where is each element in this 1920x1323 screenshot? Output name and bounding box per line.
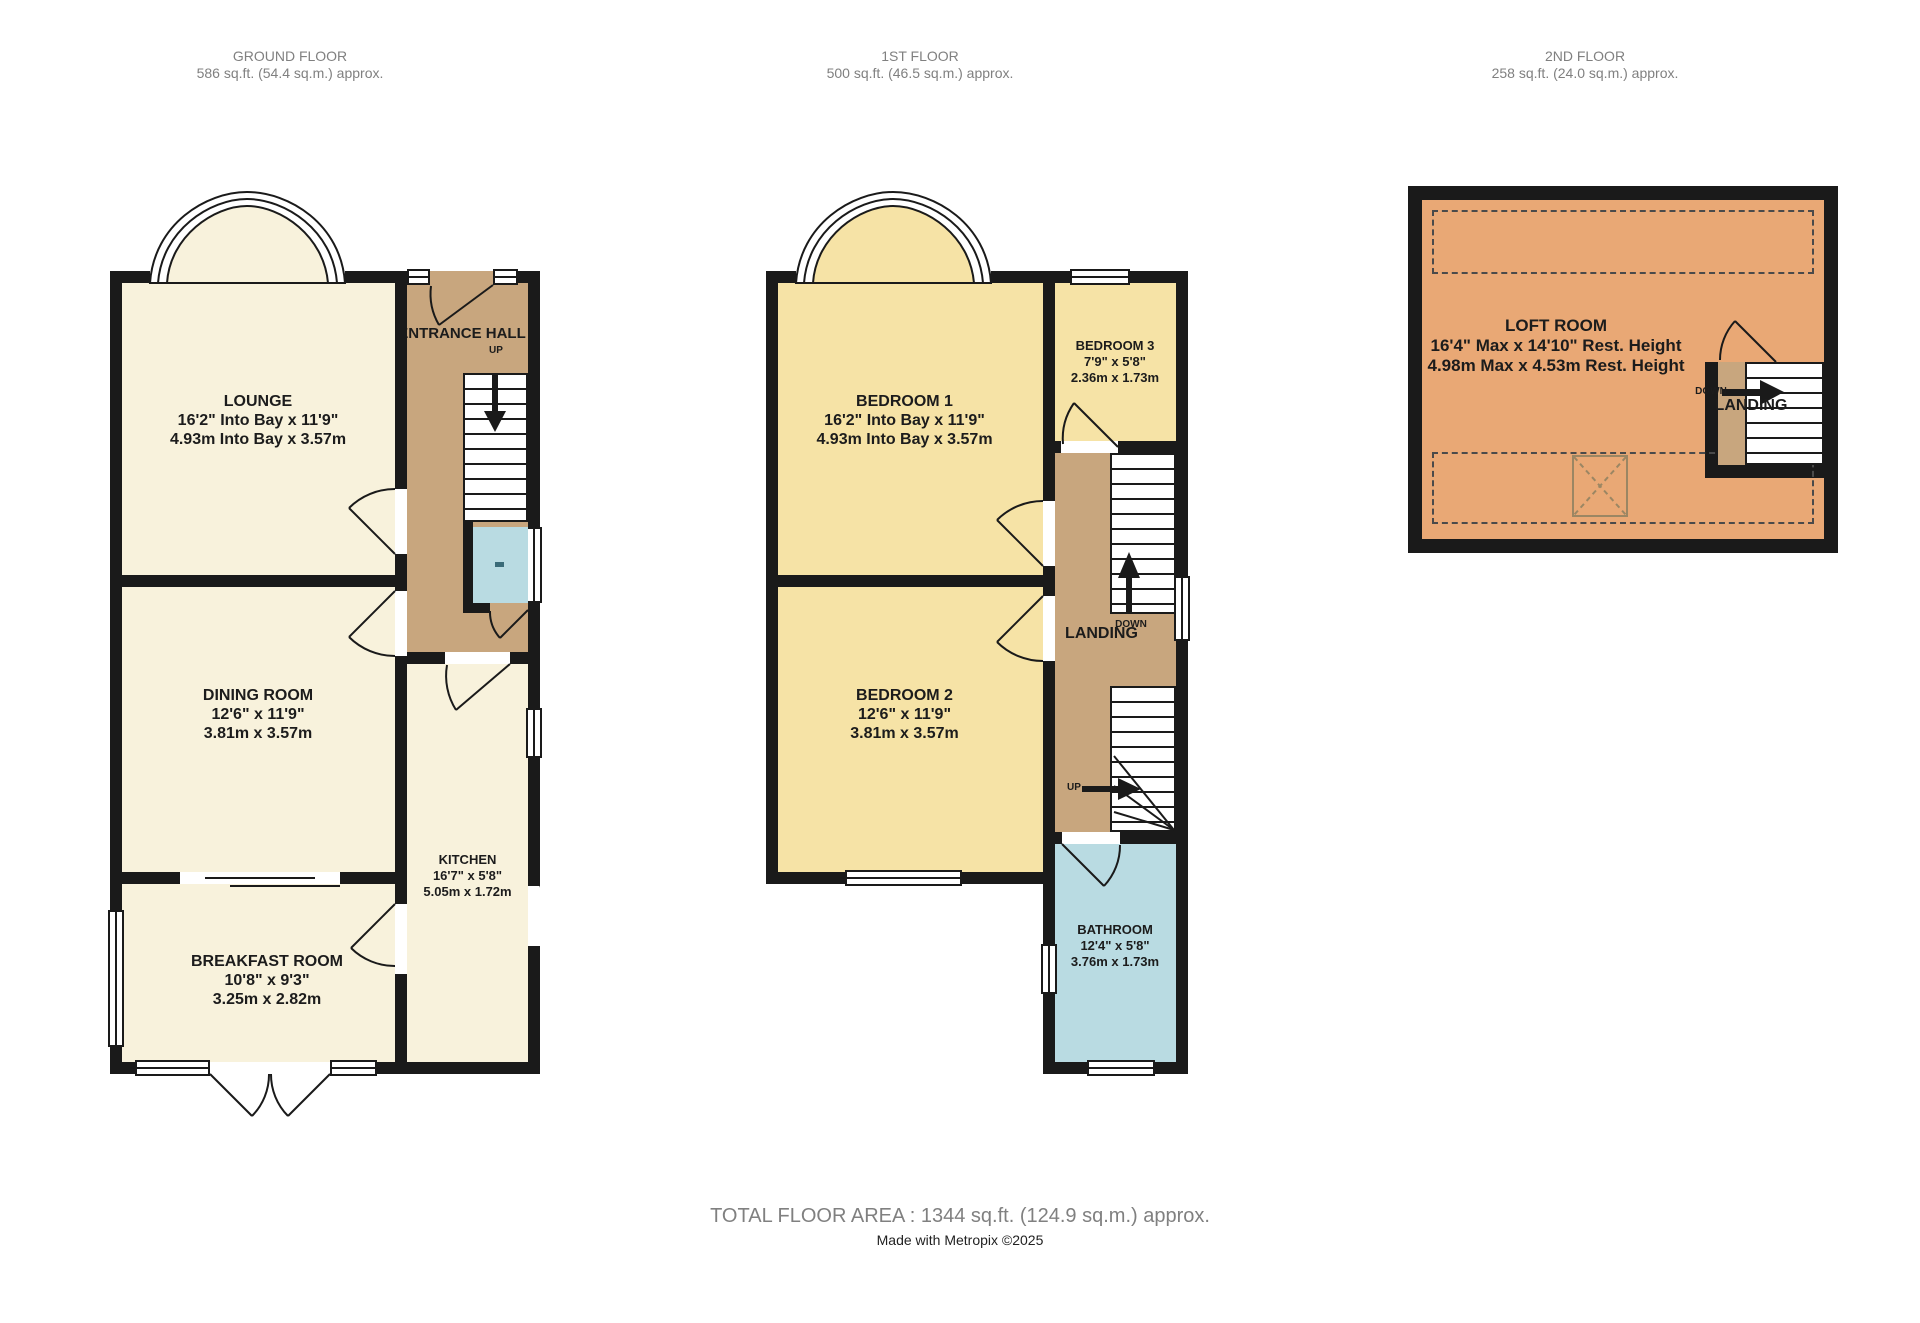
door-arc [252,1074,269,1116]
door-leaf [349,508,395,554]
bedroom2-label: BEDROOM 2 12'6" x 11'9" 3.81m x 3.57m [766,686,1043,743]
ground-floor-header: GROUND FLOOR 586 sq.ft. (54.4 sq.m.) app… [90,48,490,82]
door-arc [997,501,1043,520]
bedroom1-label: BEDROOM 1 16'2" Into Bay x 11'9" 4.93m I… [766,392,1043,449]
up-label: UP [476,345,516,357]
bedroom1-name: BEDROOM 1 [766,392,1043,411]
door-arc [349,637,395,656]
stairs-up-arrowhead [1118,552,1140,578]
door-leaf [1062,844,1104,886]
bedroom3-name: BEDROOM 3 [1051,338,1179,354]
door-leaf [349,591,395,637]
breakfast-dims-imperial: 10'8" x 9'3" [117,971,417,990]
bedroom1-dims-imperial: 16'2" Into Bay x 11'9" [766,411,1043,430]
lounge-label: LOUNGE 16'2" Into Bay x 11'9" 4.93m Into… [118,392,398,449]
door-arc [1720,321,1735,360]
kitchen-name: KITCHEN [405,852,530,868]
winder-step [1114,812,1174,830]
dining-dims-imperial: 12'6" x 11'9" [118,705,398,724]
floorplan-canvas: GROUND FLOOR 586 sq.ft. (54.4 sq.m.) app… [0,0,1920,1323]
second-floor-title: 2ND FLOOR [1385,48,1785,65]
first-floor-title: 1ST FLOOR [720,48,1120,65]
breakfast-dims-metric: 3.25m x 2.82m [117,990,417,1009]
first-floor-header: 1ST FLOOR 500 sq.ft. (46.5 sq.m.) approx… [720,48,1120,82]
ground-floor-title: GROUND FLOOR [90,48,490,65]
door-leaf [1074,403,1118,447]
landing-label: LANDING [1701,396,1801,415]
door-arc [1104,845,1120,886]
door-leaf [997,520,1043,566]
ground-floor-plan: ENTRANCE HALL UP LOUNGE 16'2" Into Bay x… [110,186,540,1146]
down-label: DOWN [1111,619,1151,631]
metropix-credit: Made with Metropix ©2025 [460,1232,1460,1248]
stairs-down-arrowhead [484,411,506,432]
bedroom1-dims-metric: 4.93m Into Bay x 3.57m [766,430,1043,449]
bathroom-dims-imperial: 12'4" x 5'8" [1051,938,1179,954]
door-arc [431,286,439,325]
lounge-dims-metric: 4.93m Into Bay x 3.57m [118,430,398,449]
door-arc [446,665,456,710]
door-arc [490,611,500,638]
first-floor-plan: BEDROOM 1 16'2" Into Bay x 11'9" 4.93m I… [766,186,1188,1086]
second-floor-area: 258 sq.ft. (24.0 sq.m.) approx. [1385,65,1785,82]
bedroom3-label: BEDROOM 3 7'9" x 5'8" 2.36m x 1.73m [1051,338,1179,386]
door-leaf [351,904,395,948]
stairs-up-arrow [1082,786,1120,792]
door-arc [349,489,395,508]
door-leaf [439,285,493,325]
bathroom-dims-metric: 3.76m x 1.73m [1051,954,1179,970]
door-arc [271,1074,288,1116]
loft-name: LOFT ROOM [1408,316,1704,336]
first-floor-area: 500 sq.ft. (46.5 sq.m.) approx. [720,65,1120,82]
door-arc [997,642,1043,661]
ground-floor-area: 586 sq.ft. (54.4 sq.m.) approx. [90,65,490,82]
bedroom2-dims-metric: 3.81m x 3.57m [766,724,1043,743]
lounge-name: LOUNGE [118,392,398,411]
bathroom-label: BATHROOM 12'4" x 5'8" 3.76m x 1.73m [1051,922,1179,970]
bedroom3-dims-metric: 2.36m x 1.73m [1051,370,1179,386]
dining-dims-metric: 3.81m x 3.57m [118,724,398,743]
loft-dims-imperial: 16'4" Max x 14'10" Rest. Height [1408,336,1704,356]
lounge-dims-imperial: 16'2" Into Bay x 11'9" [118,411,398,430]
bedroom3-dims-imperial: 7'9" x 5'8" [1051,354,1179,370]
bedroom2-name: BEDROOM 2 [766,686,1043,705]
second-floor-header: 2ND FLOOR 258 sq.ft. (24.0 sq.m.) approx… [1385,48,1785,82]
bedroom2-dims-imperial: 12'6" x 11'9" [766,705,1043,724]
bathroom-name: BATHROOM [1051,922,1179,938]
total-floor-area: TOTAL FLOOR AREA : 1344 sq.ft. (124.9 sq… [460,1205,1460,1228]
stairs-down-arrow [492,375,498,413]
dining-room-label: DINING ROOM 12'6" x 11'9" 3.81m x 3.57m [118,686,398,743]
loft-room-label: LOFT ROOM 16'4" Max x 14'10" Rest. Heigh… [1408,316,1704,376]
door-leaf [500,610,528,638]
loft-dims-metric: 4.98m Max x 4.53m Rest. Height [1408,356,1704,376]
door-leaf [288,1074,330,1116]
dining-name: DINING ROOM [118,686,398,705]
door-leaf [210,1074,252,1116]
up-label: UP [1062,782,1086,794]
breakfast-name: BREAKFAST ROOM [117,952,417,971]
stairs-up-arrow [1126,576,1132,612]
kitchen-dims-metric: 5.05m x 1.72m [405,884,530,900]
door-arc [1063,403,1074,444]
kitchen-dims-imperial: 16'7" x 5'8" [405,868,530,884]
door-leaf [456,664,510,710]
door-leaf [1735,321,1776,362]
breakfast-room-label: BREAKFAST ROOM 10'8" x 9'3" 3.25m x 2.82… [117,952,417,1009]
second-floor-plan: LOFT ROOM 16'4" Max x 14'10" Rest. Heigh… [1408,186,1838,553]
kitchen-label: KITCHEN 16'7" x 5'8" 5.05m x 1.72m [405,852,530,900]
